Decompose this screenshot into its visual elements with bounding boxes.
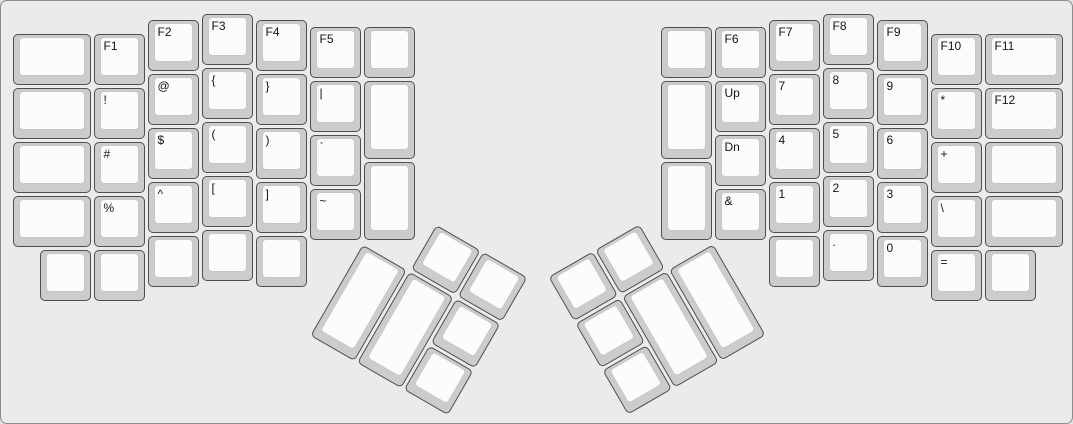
key-label: !	[104, 93, 107, 107]
key-label: %	[104, 201, 115, 215]
key-0[interactable]: 0	[877, 236, 928, 287]
key-blank[interactable]	[661, 81, 712, 159]
key-label: {	[212, 73, 216, 87]
key-equals[interactable]: =	[931, 250, 982, 301]
key-label: }	[266, 79, 270, 93]
keycap-top-surface: F10	[937, 37, 976, 76]
key-f1[interactable]: F1	[94, 34, 145, 85]
key-close-paren[interactable]: )	[256, 128, 307, 179]
keycap-top-surface	[154, 239, 193, 278]
key-asterisk[interactable]: *	[931, 88, 982, 139]
keycap-top-surface: |	[316, 84, 355, 123]
key-f5[interactable]: F5	[310, 27, 361, 78]
key-blank[interactable]	[661, 162, 712, 240]
key-label: Up	[725, 86, 740, 100]
keycap-top-surface: )	[262, 131, 301, 170]
keycap-top-surface: 3	[883, 185, 922, 224]
keycap-top-surface: F12	[991, 91, 1057, 130]
key-1[interactable]: 1	[769, 182, 820, 233]
key-label: )	[266, 133, 270, 147]
key-blank[interactable]	[13, 88, 91, 139]
keycap-top-surface: }	[262, 77, 301, 116]
keycap-top-surface	[991, 253, 1030, 292]
key-blank[interactable]	[769, 236, 820, 287]
key-label: 0	[887, 241, 894, 255]
keycap-top-surface	[667, 165, 706, 231]
keycap-top-surface: 5	[829, 125, 868, 164]
key-backtick[interactable]: `	[310, 135, 361, 186]
keycap-top-surface: +	[937, 145, 976, 184]
key-period[interactable]: .	[823, 230, 874, 281]
key-f11[interactable]: F11	[985, 34, 1063, 85]
key-7[interactable]: 7	[769, 74, 820, 125]
keycap-top-surface: F6	[721, 30, 760, 69]
key-label: *	[941, 93, 946, 107]
keyboard-canvas: F1!#%F2@$^F3{([F4})]F5|`~F6UpDn&F7741F88…	[0, 0, 1073, 424]
key-6[interactable]: 6	[877, 128, 928, 179]
key-4[interactable]: 4	[769, 128, 820, 179]
keycap-top-surface: (	[208, 125, 247, 164]
keycap-top-surface: @	[154, 77, 193, 116]
key-label: F11	[995, 39, 1015, 53]
key-hash[interactable]: #	[94, 142, 145, 193]
keycap-top-surface: F5	[316, 30, 355, 69]
keycap-top-surface	[667, 84, 706, 150]
key-label: 9	[887, 79, 894, 93]
key-backslash[interactable]: \	[931, 196, 982, 247]
key-ampersand[interactable]: &	[715, 189, 766, 240]
key-f7[interactable]: F7	[769, 20, 820, 71]
keycap-top-surface: F9	[883, 23, 922, 62]
keycap-top-surface: Dn	[721, 138, 760, 177]
key-label: |	[320, 86, 323, 100]
keycap-top-surface	[262, 239, 301, 278]
key-blank[interactable]	[364, 27, 415, 78]
key-blank[interactable]	[202, 230, 253, 281]
key-label: `	[320, 140, 324, 154]
key-label: 3	[887, 187, 894, 201]
keycap-top-surface	[46, 253, 85, 292]
keycap-top-surface: *	[937, 91, 976, 130]
key-close-brace[interactable]: }	[256, 74, 307, 125]
keycap-top-surface: %	[100, 199, 139, 238]
key-label: #	[104, 147, 111, 161]
keycap-top-surface: F3	[208, 17, 247, 56]
keycap-top-surface: `	[316, 138, 355, 177]
key-label: 7	[779, 79, 786, 93]
key-label: =	[941, 255, 948, 269]
keycap-top-surface: {	[208, 71, 247, 110]
key-blank[interactable]	[985, 196, 1063, 247]
key-label: F12	[995, 93, 1016, 107]
key-dollar[interactable]: $	[148, 128, 199, 179]
key-label: F4	[266, 25, 280, 39]
key-open-paren[interactable]: (	[202, 122, 253, 173]
key-blank[interactable]	[148, 236, 199, 287]
keycap-top-surface	[991, 199, 1057, 238]
keycap-top-surface: F11	[991, 37, 1057, 76]
key-blank[interactable]	[13, 142, 91, 193]
key-dn[interactable]: Dn	[715, 135, 766, 186]
key-f3[interactable]: F3	[202, 14, 253, 65]
key-label: \	[941, 201, 944, 215]
keycap-top-surface: F2	[154, 23, 193, 62]
key-open-bracket[interactable]: [	[202, 176, 253, 227]
key-f10[interactable]: F10	[931, 34, 982, 85]
key-label: F6	[725, 32, 739, 46]
keycap-top-surface: &	[721, 192, 760, 231]
key-2[interactable]: 2	[823, 176, 874, 227]
keycap-top-surface: [	[208, 179, 247, 218]
keycap-top-surface: 6	[883, 131, 922, 170]
key-label: 4	[779, 133, 786, 147]
key-label: F7	[779, 25, 793, 39]
keycap-top-surface: 1	[775, 185, 814, 224]
keycap-top-surface: \	[937, 199, 976, 238]
key-f6[interactable]: F6	[715, 27, 766, 78]
key-label: .	[833, 235, 836, 249]
keycap-top-surface	[370, 84, 409, 150]
key-8[interactable]: 8	[823, 68, 874, 119]
keycap-top-surface	[19, 91, 85, 130]
key-blank[interactable]	[256, 236, 307, 287]
keycap-top-surface	[19, 37, 85, 76]
keycap-top-surface: .	[829, 233, 868, 272]
key-pipe[interactable]: |	[310, 81, 361, 132]
key-plus[interactable]: +	[931, 142, 982, 193]
key-f4[interactable]: F4	[256, 20, 307, 71]
key-label: ]	[266, 187, 269, 201]
key-label: 8	[833, 73, 840, 87]
key-open-brace[interactable]: {	[202, 68, 253, 119]
key-up[interactable]: Up	[715, 81, 766, 132]
key-3[interactable]: 3	[877, 182, 928, 233]
key-blank[interactable]	[94, 250, 145, 301]
key-label: F9	[887, 25, 901, 39]
key-f8[interactable]: F8	[823, 14, 874, 65]
keycap-top-surface	[19, 145, 85, 184]
key-blank[interactable]	[661, 27, 712, 78]
keycap-top-surface	[208, 233, 247, 272]
keycap-top-surface	[421, 229, 474, 282]
key-label: (	[212, 127, 216, 141]
keycap-top-surface	[991, 145, 1057, 184]
keycap-top-surface	[100, 253, 139, 292]
key-label: &	[725, 194, 733, 208]
key-blank[interactable]	[13, 34, 91, 85]
key-label: F2	[158, 25, 172, 39]
key-label: 5	[833, 127, 840, 141]
key-label: F1	[104, 39, 118, 53]
key-tilde[interactable]: ~	[310, 189, 361, 240]
keycap-top-surface: F8	[829, 17, 868, 56]
keycap-top-surface: 7	[775, 77, 814, 116]
key-label: Dn	[725, 140, 740, 154]
keycap-top-surface: 4	[775, 131, 814, 170]
key-label: +	[941, 147, 948, 161]
key-label: ~	[320, 194, 327, 208]
keycap-top-surface: 9	[883, 77, 922, 116]
keycap-top-surface	[370, 30, 409, 69]
key-f2[interactable]: F2	[148, 20, 199, 71]
key-blank[interactable]	[364, 81, 415, 159]
key-blank[interactable]	[40, 250, 91, 301]
key-label: 1	[779, 187, 786, 201]
keycap-top-surface: ]	[262, 185, 301, 224]
key-label: F8	[833, 19, 847, 33]
key-exclamation[interactable]: !	[94, 88, 145, 139]
keycap-top-surface: !	[100, 91, 139, 130]
keycap-top-surface: Up	[721, 84, 760, 123]
key-label: [	[212, 181, 215, 195]
key-5[interactable]: 5	[823, 122, 874, 173]
key-f9[interactable]: F9	[877, 20, 928, 71]
key-at[interactable]: @	[148, 74, 199, 125]
keycap-top-surface	[19, 199, 85, 238]
keycap-top-surface	[601, 229, 654, 282]
keycap-top-surface: $	[154, 131, 193, 170]
key-close-bracket[interactable]: ]	[256, 182, 307, 233]
key-blank[interactable]	[985, 142, 1063, 193]
keycap-top-surface	[667, 30, 706, 69]
key-9[interactable]: 9	[877, 74, 928, 125]
key-label: @	[158, 79, 170, 93]
keycap-top-surface: F1	[100, 37, 139, 76]
keycap-top-surface	[467, 256, 520, 309]
key-blank[interactable]	[13, 196, 91, 247]
key-label: 2	[833, 181, 840, 195]
key-blank[interactable]	[985, 250, 1036, 301]
key-caret[interactable]: ^	[148, 182, 199, 233]
key-f12[interactable]: F12	[985, 88, 1063, 139]
keycap-top-surface: =	[937, 253, 976, 292]
keycap-top-surface: F7	[775, 23, 814, 62]
key-blank[interactable]	[364, 162, 415, 240]
keycap-top-surface: 2	[829, 179, 868, 218]
keycap-top-surface: 8	[829, 71, 868, 110]
keycap-top-surface: ^	[154, 185, 193, 224]
keycap-top-surface	[370, 165, 409, 231]
keycap-top-surface	[775, 239, 814, 278]
keycap-top-surface	[554, 256, 607, 309]
key-label: F10	[941, 39, 962, 53]
key-label: $	[158, 133, 165, 147]
key-label: 6	[887, 133, 894, 147]
key-label: F5	[320, 32, 334, 46]
keycap-top-surface: F4	[262, 23, 301, 62]
key-label: F3	[212, 19, 226, 33]
keycap-top-surface: ~	[316, 192, 355, 231]
key-percent[interactable]: %	[94, 196, 145, 247]
keycap-top-surface: 0	[883, 239, 922, 278]
key-label: ^	[158, 187, 164, 201]
keycap-top-surface: #	[100, 145, 139, 184]
